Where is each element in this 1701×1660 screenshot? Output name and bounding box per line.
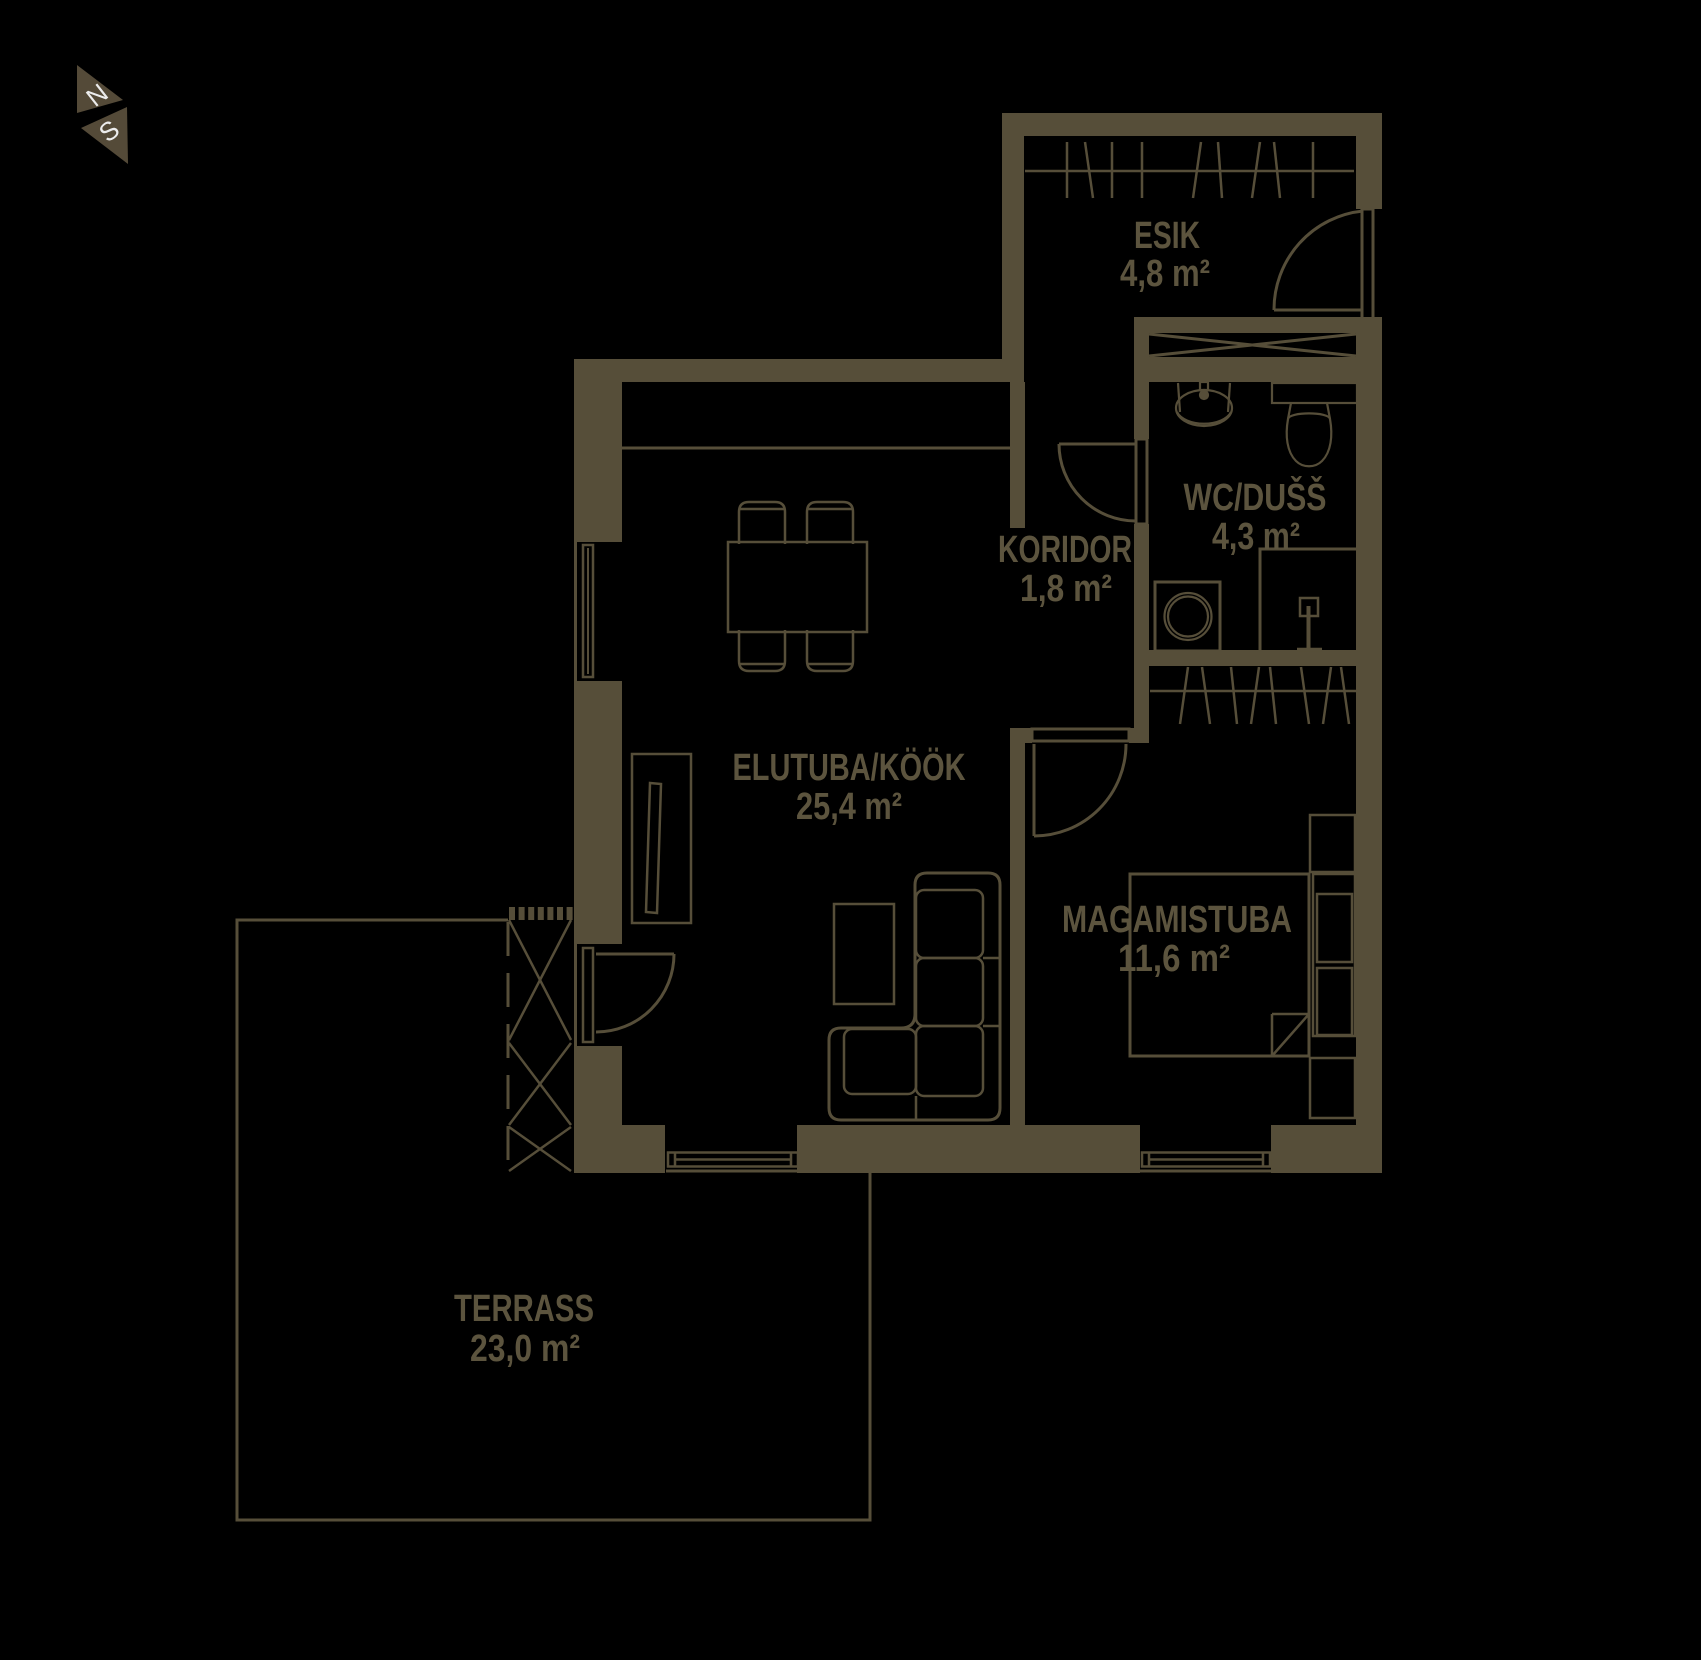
svg-text:TERRASS: TERRASS [454,1288,594,1330]
svg-text:11,6 m²: 11,6 m² [1118,938,1230,980]
svg-text:ELUTUBA/KÖÖK: ELUTUBA/KÖÖK [733,746,966,789]
svg-text:MAGAMISTUBA: MAGAMISTUBA [1062,899,1292,941]
svg-text:KORIDOR: KORIDOR [998,529,1132,571]
svg-text:4,3 m²: 4,3 m² [1212,516,1300,558]
svg-text:23,0 m²: 23,0 m² [470,1328,580,1370]
svg-text:WC/DUŠŠ: WC/DUŠŠ [1184,474,1327,519]
svg-text:1,8 m²: 1,8 m² [1020,568,1112,610]
svg-text:4,8 m²: 4,8 m² [1120,253,1210,295]
svg-text:ESIK: ESIK [1134,215,1200,257]
svg-text:25,4 m²: 25,4 m² [796,786,902,828]
